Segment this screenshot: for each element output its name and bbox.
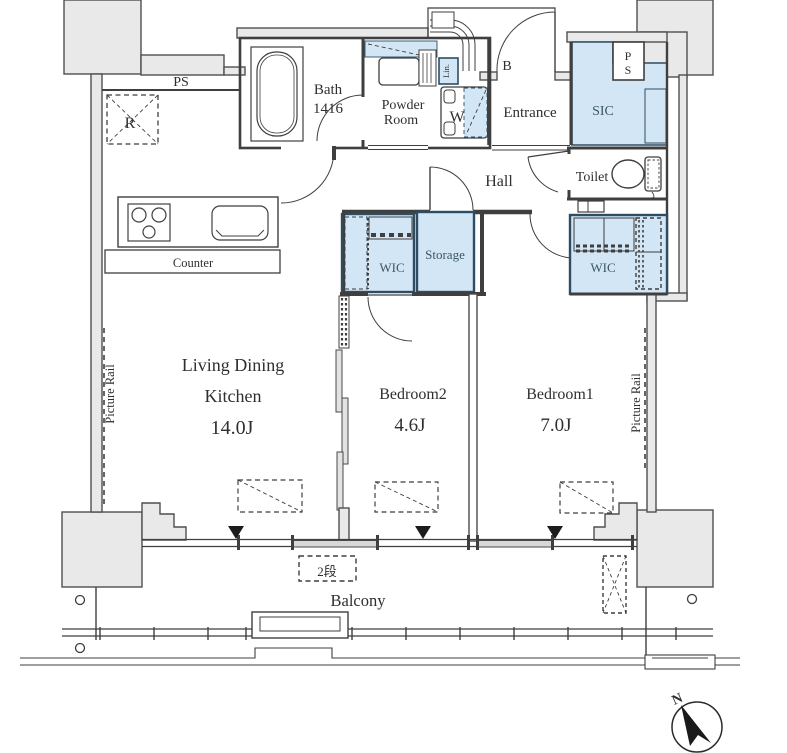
label-powder-2: Room: [384, 113, 418, 128]
sic-shelf: [645, 89, 666, 143]
wic-bedroom1-group: [570, 215, 667, 294]
storage-door-arc: [430, 167, 473, 210]
bathtub-inner: [260, 55, 294, 133]
jamb: [631, 535, 634, 550]
balcony-center-bump: [252, 612, 348, 638]
label-b-mark: B: [502, 59, 511, 74]
hatched-wall: [339, 296, 349, 348]
drain-circle: [76, 596, 85, 605]
wic-bedroom1-floor: [570, 215, 667, 294]
ac-diag: [560, 482, 613, 513]
window-marker-triangle: [547, 526, 563, 539]
label-sic: SIC: [592, 104, 614, 119]
entry-threshold-right: [555, 72, 571, 80]
hall-boundaries: [281, 143, 570, 203]
label-two-steps: 2段: [317, 564, 337, 579]
jamb: [476, 535, 479, 550]
left-outer-wall: [91, 74, 102, 512]
label-wic-bedroom1: WIC: [590, 260, 615, 275]
column-bottom-left: [62, 512, 142, 587]
compass-needle: [681, 705, 711, 746]
label-bedroom1-size: 7.0J: [540, 415, 571, 436]
jamb: [376, 535, 379, 550]
meter-box: [432, 12, 454, 28]
wall-step-bottom-right: [594, 503, 637, 540]
label-wic-bedroom2: WIC: [379, 260, 404, 275]
toilet-door-arc: [528, 157, 558, 192]
jamb: [467, 535, 470, 550]
label-toilet: Toilet: [576, 170, 609, 185]
wic2-door-arc: [368, 297, 412, 341]
equipment-boxes: [238, 480, 613, 513]
label-bath: Bath: [314, 82, 343, 98]
label-counter: Counter: [173, 256, 214, 270]
label-picture-rail-right: Picture Rail: [629, 373, 643, 433]
label-bath-size: 1416: [313, 101, 344, 117]
label-picture-rail-left: Picture Rail: [103, 364, 117, 424]
label-hall: Hall: [485, 173, 513, 190]
label-bedroom1: Bedroom1: [526, 386, 594, 403]
label-bedroom2: Bedroom2: [379, 386, 447, 403]
burner: [143, 226, 155, 238]
drain-circle: [76, 644, 85, 653]
drain-circle: [688, 595, 697, 604]
label-ldk-2: Kitchen: [205, 386, 262, 406]
column-top-left: [64, 0, 141, 74]
jamb: [551, 535, 554, 550]
washer-pad: [444, 90, 455, 103]
label-ldk-size: 14.0J: [211, 417, 254, 439]
sliding-wall-stub: [339, 508, 349, 541]
label-balcony: Balcony: [331, 591, 387, 610]
wic-bedroom2-floor: [342, 214, 414, 292]
label-ldk-1: Living Dining: [182, 355, 285, 375]
floor-plan-drawing: PS R Bath 1416 Powder Room Lin. W B Entr…: [0, 0, 787, 753]
powder-doorway-gap: [368, 143, 428, 150]
toilet-bowl-icon: [612, 160, 644, 188]
column-bottom-right: [637, 510, 713, 587]
burner: [132, 208, 146, 222]
door-jamb: [332, 146, 336, 160]
label-washer: W: [449, 109, 465, 126]
balcony-door-rail: [478, 541, 552, 548]
jamb: [291, 535, 294, 550]
window-marker-triangle: [415, 526, 431, 539]
washer-overlay: [464, 88, 487, 137]
bedroom-divider-wall: [469, 294, 477, 541]
toilet-shelf: [578, 201, 604, 212]
balcony-bench: [645, 655, 715, 669]
label-refrigerator: R: [125, 115, 136, 132]
top-left-wall-step: [224, 67, 245, 75]
vanity-sink: [379, 58, 419, 85]
lower-edge-1: [20, 648, 740, 658]
jamb: [237, 535, 240, 550]
label-bedroom2-size: 4.6J: [394, 415, 425, 436]
label-entrance: Entrance: [503, 105, 557, 121]
label-powder-1: Powder: [382, 98, 425, 113]
bath-top-wall: [237, 28, 428, 38]
wall-step-bottom-left: [142, 503, 186, 540]
tall-cabinet: [419, 50, 436, 86]
window-marker-triangle: [228, 526, 244, 539]
right-outer-wall-upper: [679, 75, 687, 300]
compass: [672, 702, 722, 752]
balcony-door-rail: [293, 541, 377, 548]
sliding-door-panel: [336, 350, 342, 412]
label-storage: Storage: [425, 247, 465, 262]
label-ps-right-p: P: [625, 49, 632, 63]
sliding-door-panel: [337, 452, 343, 510]
sic-top-wall: [567, 32, 667, 42]
toilet-door-leaf: [528, 151, 569, 157]
bath-powder-block: [240, 38, 490, 148]
toilet-handle: [649, 192, 654, 198]
label-ps-right-s: S: [625, 63, 632, 77]
window-wall: [142, 526, 637, 550]
floor-plan-page: PS R Bath 1416 Powder Room Lin. W B Entr…: [0, 0, 787, 753]
top-left-wall: [141, 55, 224, 75]
ldk-door-arc: [281, 150, 334, 203]
right-outer-wall-lower: [647, 293, 656, 512]
ac-diag: [375, 482, 438, 512]
burner: [152, 208, 166, 222]
label-linen: Lin.: [441, 64, 451, 78]
ac-diag: [238, 480, 302, 512]
ldk-doorway-gap: [281, 143, 334, 150]
bedroom1-door-arc: [530, 214, 572, 258]
label-ps-top: PS: [173, 75, 189, 90]
